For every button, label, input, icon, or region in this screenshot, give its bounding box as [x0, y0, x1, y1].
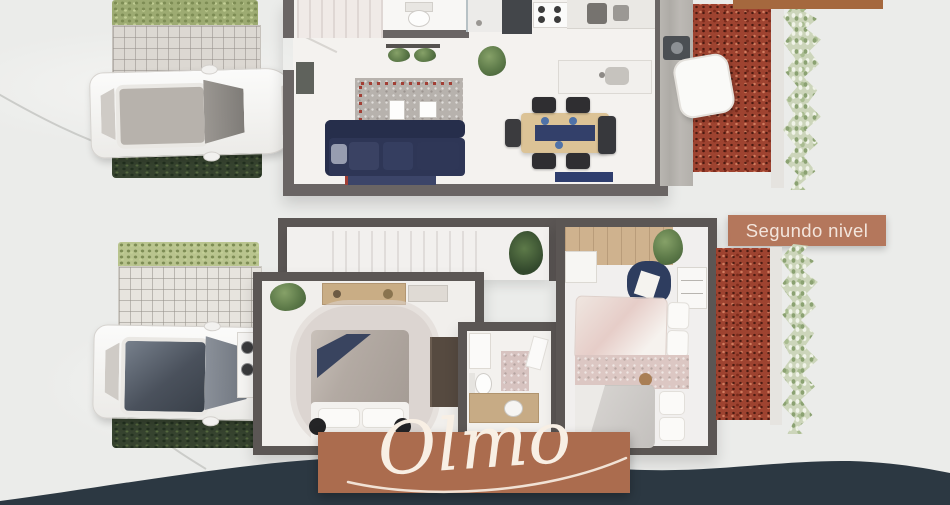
hanging-chair: [671, 52, 737, 121]
climbing-vine: [783, 2, 821, 190]
wall-left: [283, 70, 294, 186]
sofa-back: [325, 120, 465, 138]
wardrobe: [430, 337, 458, 407]
bed-pillow: [659, 391, 685, 415]
entry-doormat: [296, 62, 314, 94]
first-level-floorplan: [283, 0, 668, 196]
bed-duvet: [574, 296, 668, 362]
burner: [538, 16, 545, 23]
car-rear-window: [100, 88, 115, 140]
navy-l-sofa: [325, 120, 465, 178]
model-banner: [318, 432, 630, 493]
staircase: [332, 231, 487, 277]
second-level-badge-label: Segundo nivel: [746, 220, 868, 242]
toilet: [469, 369, 491, 395]
toilet: [405, 2, 431, 26]
kitchen-tall-cabinet: [502, 0, 532, 34]
stairs: [297, 0, 383, 38]
car-mirror: [204, 321, 221, 331]
wall-left: [283, 0, 294, 38]
laundry-door: [671, 42, 683, 54]
hanging-plant-shelf: [386, 44, 440, 48]
runner-rug: [345, 176, 436, 185]
garden-path: [771, 0, 784, 188]
dining-chair: [532, 97, 556, 113]
chair-blanket: [634, 270, 660, 299]
plate: [541, 117, 549, 125]
dining-chair: [566, 153, 590, 169]
red-gravel-garden: [716, 248, 770, 420]
potted-plant: [653, 229, 683, 265]
kids-area-rug: [575, 355, 689, 389]
high-chair: [505, 119, 521, 147]
kids-bed-pink: [574, 296, 690, 361]
master-bed: [311, 330, 409, 446]
kitchen-sink: [605, 67, 629, 85]
towel: [525, 335, 549, 370]
wall-hall-top: [278, 218, 560, 227]
picture-frame: [389, 100, 405, 120]
desk-shelf: [322, 283, 406, 305]
climbing-vine: [780, 244, 818, 434]
shelf-line: [681, 280, 703, 281]
sofa-cushion: [383, 142, 413, 170]
rug-fringe: [361, 82, 457, 85]
sofa-cushion: [417, 142, 459, 170]
small-blue-rug: [555, 172, 613, 182]
hedge: [118, 242, 259, 269]
render-canvas: Segundo nivel: [0, 0, 950, 505]
desk-item: [333, 290, 341, 298]
bench: [598, 116, 616, 154]
master-bedroom: [253, 272, 484, 455]
faucet: [599, 72, 605, 78]
potted-plant: [509, 231, 543, 275]
bed-pillow: [659, 417, 685, 441]
burner: [554, 16, 561, 23]
coffee-machine: [587, 3, 607, 24]
dining-table: [521, 113, 609, 153]
burner: [538, 6, 545, 13]
throw-pillow: [331, 144, 347, 164]
bath-rug: [501, 351, 529, 391]
sofa-cushion: [349, 142, 379, 170]
burner: [554, 6, 561, 13]
potted-plant: [270, 283, 306, 311]
laundry-machine: [663, 36, 690, 60]
first-level-bar-cropped: [733, 0, 883, 9]
shower: [466, 0, 504, 32]
kitchen-counter: [567, 0, 655, 29]
car-mirror: [202, 416, 219, 426]
dining-chair: [532, 153, 556, 169]
car-roof-glass: [120, 337, 209, 417]
toilet-bowl: [408, 10, 430, 27]
wall-bottom: [283, 184, 668, 196]
vanity-sink: [504, 400, 523, 417]
wood-vanity: [469, 393, 539, 423]
side-shelf: [408, 285, 448, 302]
plate: [555, 141, 563, 149]
kids-desk: [565, 251, 597, 283]
picture-frame: [419, 101, 437, 118]
second-level-badge: Segundo nivel: [728, 215, 886, 246]
white-suv-car: [89, 67, 297, 158]
car-roof-glass: [115, 83, 209, 149]
dining-chair: [566, 97, 590, 113]
car-windshield: [203, 79, 245, 144]
sink-counter: [558, 60, 652, 94]
bed-pillow: [667, 302, 690, 330]
car-rear-window: [105, 342, 120, 400]
stove: [533, 2, 569, 28]
shelf-line: [681, 293, 703, 294]
garden-path: [770, 247, 782, 425]
plate: [569, 117, 577, 125]
shower-drain: [476, 20, 482, 26]
potted-plant: [478, 46, 506, 76]
desk-item: [383, 289, 393, 299]
bed-pillow: [666, 330, 689, 358]
toilet-bowl: [475, 373, 492, 395]
kids-bedroom: [556, 218, 717, 455]
hedge: [112, 0, 258, 27]
bathroom-cabinet: [469, 333, 491, 369]
shelf-plant: [388, 48, 410, 62]
wall-bathroom: [383, 30, 469, 38]
shelf-plant: [414, 48, 436, 62]
table-runner: [535, 125, 595, 141]
small-appliance: [613, 5, 629, 21]
